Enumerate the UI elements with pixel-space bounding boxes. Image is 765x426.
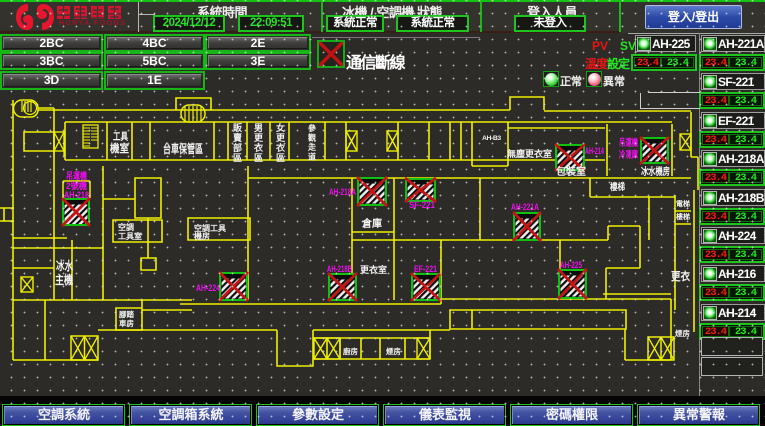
svg-text:衣: 衣 <box>254 142 263 153</box>
svg-text:AH-214: AH-214 <box>585 146 604 157</box>
svg-text:機室: 機室 <box>110 141 129 155</box>
svg-text:女: 女 <box>276 122 285 133</box>
svg-text:男: 男 <box>254 123 263 133</box>
svg-text:參: 參 <box>308 123 317 133</box>
svg-text:更衣室: 更衣室 <box>360 264 387 275</box>
svg-text:煙房: 煙房 <box>386 346 401 356</box>
svg-text:EF-221: EF-221 <box>414 264 438 275</box>
svg-text:販: 販 <box>233 122 243 133</box>
svg-text:區: 區 <box>233 153 242 163</box>
svg-text:電梯: 電梯 <box>676 199 690 208</box>
svg-text:AH-225: AH-225 <box>560 260 582 271</box>
svg-text:包裝室: 包裝室 <box>556 165 586 178</box>
svg-text:空調: 空調 <box>118 222 134 232</box>
svg-text:車房: 車房 <box>119 318 134 328</box>
svg-text:部: 部 <box>233 142 242 153</box>
svg-text:AH-224: AH-224 <box>196 283 221 294</box>
svg-text:AH-218B: AH-218B <box>327 264 352 275</box>
svg-text:工具: 工具 <box>113 131 128 143</box>
svg-text:衣: 衣 <box>276 142 285 153</box>
svg-text:台車保管區: 台車保管區 <box>163 141 203 156</box>
svg-text:腳踏: 腳踏 <box>118 309 134 319</box>
svg-text:道: 道 <box>308 152 316 162</box>
svg-text:冷凍庫: 冷凍庫 <box>619 149 638 161</box>
svg-text:走: 走 <box>307 142 317 152</box>
svg-text:AH-218: AH-218 <box>64 190 89 200</box>
svg-text:觀: 觀 <box>308 133 316 143</box>
svg-text:樓梯: 樓梯 <box>676 212 690 221</box>
svg-text:吊運機: 吊運機 <box>66 170 87 181</box>
svg-text:冰水: 冰水 <box>56 258 74 273</box>
svg-text:主機: 主機 <box>55 272 73 287</box>
svg-text:區: 區 <box>276 153 285 163</box>
svg-text:AH-218A: AH-218A <box>329 187 356 198</box>
svg-text:AH-221A: AH-221A <box>511 202 539 213</box>
svg-text:倉庫: 倉庫 <box>361 217 382 230</box>
svg-text:更: 更 <box>254 133 264 143</box>
svg-text:賣: 賣 <box>232 132 243 143</box>
svg-text:更衣: 更衣 <box>671 269 691 283</box>
svg-text:無塵更衣室: 無塵更衣室 <box>507 148 552 159</box>
svg-text:SF-221: SF-221 <box>409 200 436 211</box>
svg-text:工具室: 工具室 <box>118 231 142 241</box>
svg-text:吊運機: 吊運機 <box>619 137 638 149</box>
svg-text:樓梯: 樓梯 <box>610 181 625 192</box>
svg-text:煙房: 煙房 <box>675 328 690 338</box>
svg-text:廚房: 廚房 <box>343 346 358 356</box>
svg-text:區: 區 <box>254 153 263 163</box>
svg-text:AH-B3: AH-B3 <box>482 135 501 142</box>
svg-text:冰水機房: 冰水機房 <box>641 165 670 178</box>
svg-text:更: 更 <box>276 133 286 143</box>
svg-text:機房: 機房 <box>194 231 210 241</box>
